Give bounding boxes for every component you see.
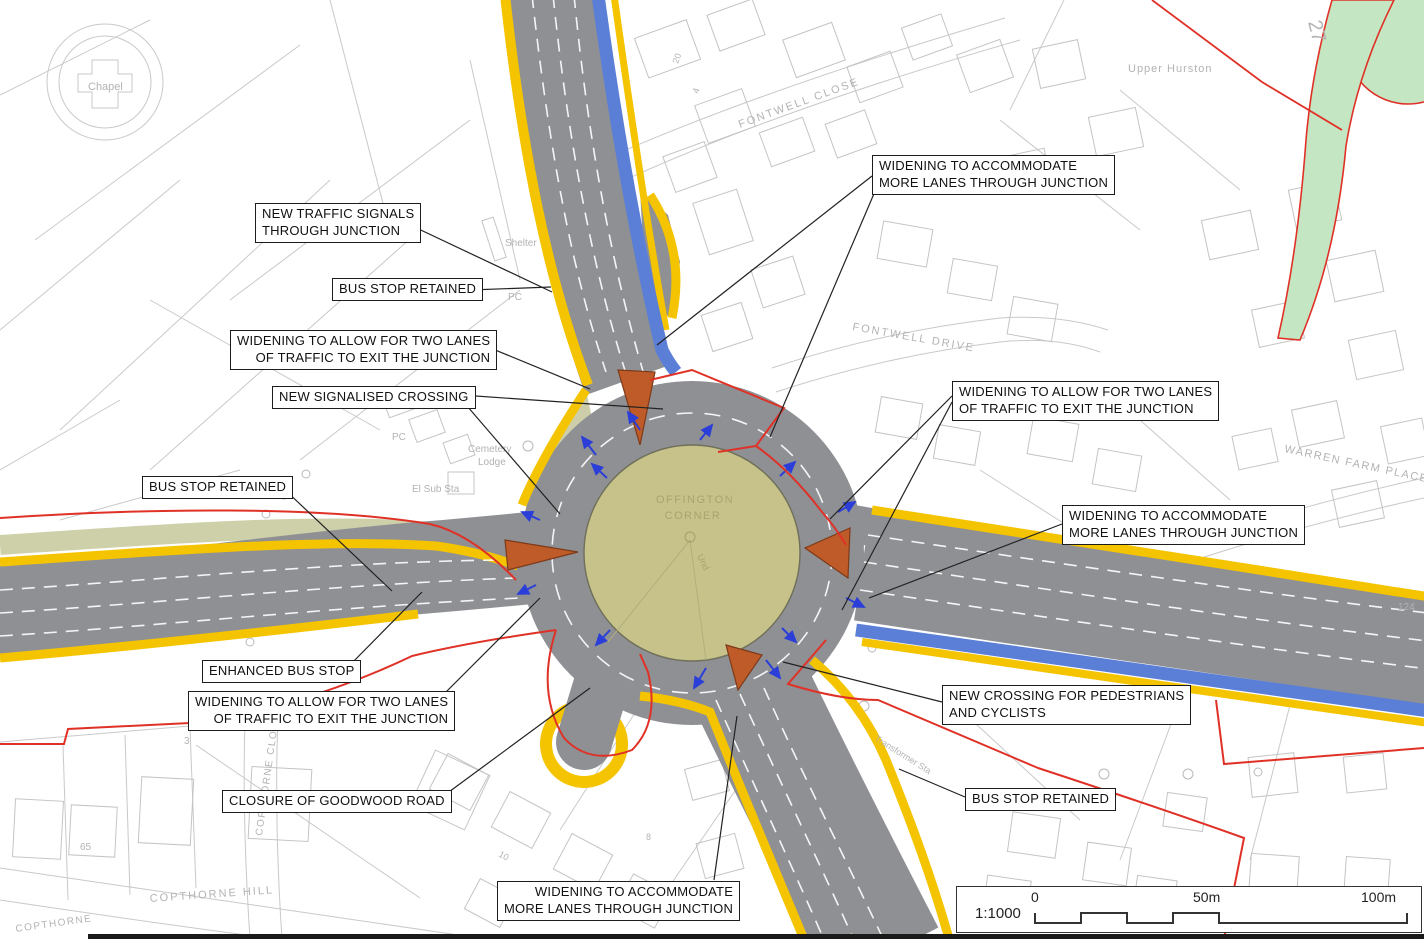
callout-widening-two-lanes-east: WIDENING TO ALLOW FOR TWO LANES OF TRAFF… <box>952 381 1219 421</box>
callout-bus-stop-retained-north: BUS STOP RETAINED <box>332 278 483 301</box>
callout-widening-more-lanes-north: WIDENING TO ACCOMMODATE MORE LANES THROU… <box>872 155 1115 195</box>
callout-widening-two-lanes-sw: WIDENING TO ALLOW FOR TWO LANES OF TRAFF… <box>188 691 455 731</box>
label-num-20: 20 <box>670 52 683 65</box>
map-canvas: OFFINGTON CORNER Und Chapel <box>0 0 1424 939</box>
callout-bus-stop-retained-west: BUS STOP RETAINED <box>142 476 293 499</box>
roundabout-name-line1: OFFINGTON <box>656 494 734 506</box>
callout-widening-more-lanes-east: WIDENING TO ACCOMMODATE MORE LANES THROU… <box>1062 505 1305 545</box>
label-upper-hurston: Upper Hurston <box>1128 63 1213 75</box>
label-fontwell-drive: FONTWELL DRIVE <box>851 321 975 354</box>
label-num-4: 4 <box>690 87 701 95</box>
callout-enhanced-bus-stop: ENHANCED BUS STOP <box>202 660 361 683</box>
label-copthorne-hill: COPTHORNE HILL <box>149 884 274 905</box>
callout-widening-two-lanes-nw: WIDENING TO ALLOW FOR TWO LANES OF TRAFF… <box>230 330 497 370</box>
label-num-124: 124 <box>1398 602 1415 613</box>
callout-new-crossing-ped-cycle: NEW CROSSING FOR PEDESTRIANS AND CYCLIST… <box>942 685 1191 725</box>
callout-bus-stop-retained-south: BUS STOP RETAINED <box>965 788 1116 811</box>
label-pc-top: PC <box>508 292 522 303</box>
label-num-10: 10 <box>497 849 511 863</box>
west-arm <box>0 556 552 612</box>
scale-bar: 1:1000 0 50m 100m <box>956 886 1422 933</box>
roundabout-name-line2: CORNER <box>665 510 722 522</box>
label-chapel: Chapel <box>88 81 123 93</box>
callout-new-traffic-signals: NEW TRAFFIC SIGNALS THROUGH JUNCTION <box>255 203 421 243</box>
label-warren-farm-place: WARREN FARM PLACE <box>1283 443 1424 485</box>
label-num-65: 65 <box>80 842 92 853</box>
callout-new-signalised-crossing: NEW SIGNALISED CROSSING <box>272 386 476 409</box>
label-shelter: Shelter <box>505 238 537 249</box>
label-pc-mid: PC <box>392 432 406 443</box>
label-copthorne-lower: COPTHORNE <box>15 913 93 935</box>
label-copthorne-close: COPTHORNE CLOSE <box>254 713 282 836</box>
callout-widening-more-lanes-south: WIDENING TO ACCOMMODATE MORE LANES THROU… <box>497 881 740 921</box>
label-num-3: 3 <box>184 736 190 747</box>
junction-improvement-plan: OFFINGTON CORNER Und Chapel <box>0 0 1424 939</box>
sheet-edge-line <box>88 934 1424 939</box>
label-num-8: 8 <box>646 832 651 842</box>
label-cemetery-2: Lodge <box>478 457 506 468</box>
roundabout-central-island: OFFINGTON CORNER Und <box>584 445 800 661</box>
callout-closure-goodwood-road: CLOSURE OF GOODWOOD ROAD <box>222 790 452 813</box>
scale-bar-graphic <box>957 887 1423 934</box>
label-el-sub-sta: El Sub Sta <box>412 484 460 495</box>
goodwood-road-stub <box>584 650 612 742</box>
